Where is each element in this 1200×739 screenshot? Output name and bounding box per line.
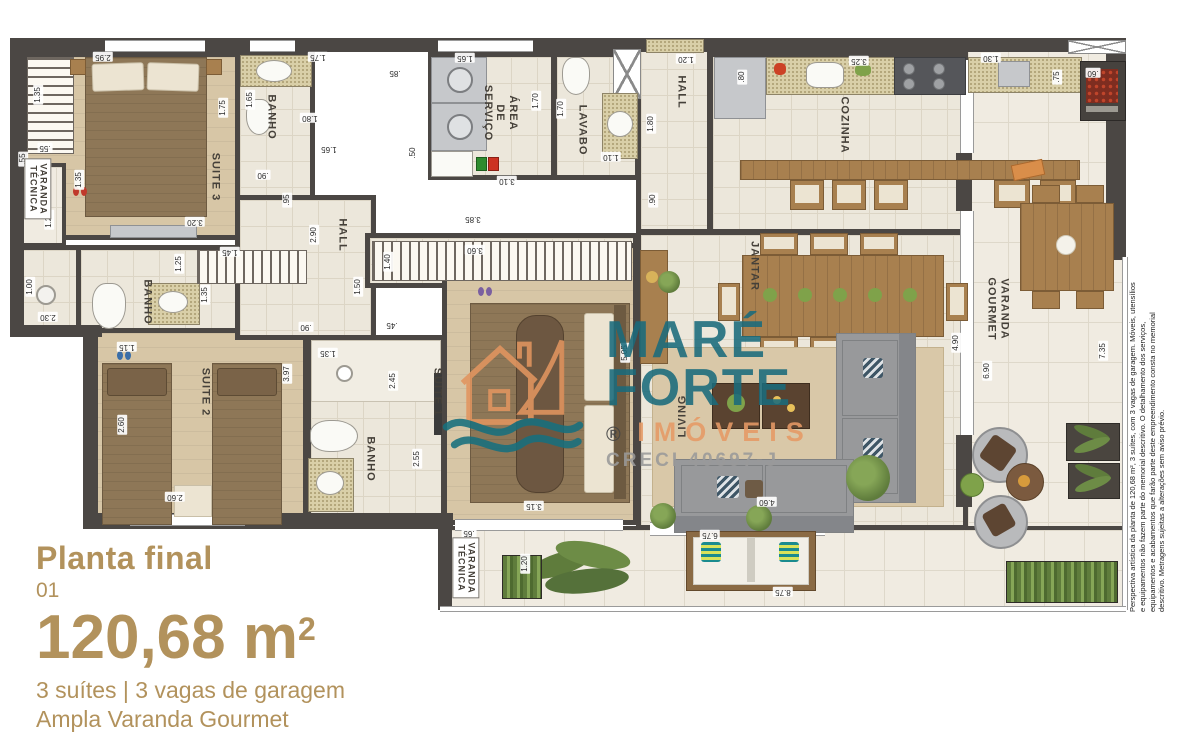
dimension-label: 1.50	[353, 277, 363, 297]
floor-plan-page: MARÉ FORTE ® IMÓVEIS CRECI 40697-J SUITE…	[0, 0, 1200, 739]
dimension-label: .85	[387, 68, 402, 78]
dimension-label: .60	[1085, 68, 1100, 78]
dimension-label: .80	[737, 69, 747, 84]
slippers	[117, 351, 123, 360]
plan-area: 120,68 m2	[36, 607, 345, 669]
palm-planter	[1068, 463, 1120, 499]
room-label-rea-de-servi-o: ÁREA DE SERVIÇO	[481, 85, 519, 141]
dimension-label: 7.35	[1098, 341, 1108, 361]
sink-banho-2	[158, 291, 188, 313]
dimension-label: 1.30	[981, 53, 1001, 63]
room-label-hall: HALL	[675, 75, 688, 108]
dimension-label: 6.90	[982, 361, 992, 381]
dimension-label: .75	[1052, 69, 1062, 84]
dimension-label: 1.80	[646, 114, 656, 134]
dimension-label: 1.20	[676, 54, 696, 64]
room-label-living: LIVING	[677, 395, 690, 438]
room-label-hall: HALL	[336, 218, 349, 251]
long-planter	[1006, 561, 1118, 603]
dimension-label: 2.90	[309, 225, 319, 245]
plant	[746, 505, 772, 531]
dresser-suite-3	[110, 225, 197, 238]
dimension-label: 6.75	[700, 530, 720, 540]
detergent	[488, 157, 499, 171]
dimension-label: 1.35	[33, 85, 43, 105]
table-flowers	[1056, 235, 1076, 255]
dimension-label: .55	[37, 143, 52, 153]
slippers	[478, 287, 484, 296]
nightstand	[206, 59, 222, 75]
disclaimer-text: Perspectiva artística da planta de 120,6…	[1128, 280, 1167, 612]
plant	[650, 503, 676, 529]
plan-features: 3 suítes | 3 vagas de garagem	[36, 677, 345, 704]
dimension-label: 3.85	[463, 214, 483, 224]
palm-planter	[1066, 423, 1120, 461]
dimension-label: 1.20	[520, 554, 530, 574]
wall-left	[10, 38, 24, 334]
dimension-label: 3.10	[497, 176, 517, 186]
room-label-jantar: JANTAR	[748, 241, 761, 291]
window-x-icon	[1068, 40, 1126, 54]
fire-table	[1006, 463, 1044, 501]
lounge-chair	[974, 495, 1028, 549]
dimension-label: 8.75	[773, 587, 793, 597]
cooktop	[894, 57, 966, 95]
dimension-label: 1.80	[300, 113, 320, 123]
dimension-label: 3.25	[849, 56, 869, 66]
dimension-label: 1.65	[319, 144, 339, 154]
railing-bottom	[440, 606, 1126, 612]
chair	[1076, 291, 1104, 309]
dimension-label: .90	[648, 192, 658, 207]
wall-varanda-left	[438, 526, 452, 610]
slippers	[486, 287, 492, 296]
dimension-label: 2.55	[412, 449, 422, 469]
chair	[1076, 185, 1104, 203]
bar-stool	[832, 180, 866, 210]
room-label-suite-1: SUITE 1	[431, 368, 444, 417]
pillow	[147, 62, 200, 92]
bar-stool	[874, 180, 908, 210]
dimension-label: 1.75	[308, 52, 328, 62]
wall-suite2-left	[83, 325, 97, 527]
dryer-door	[447, 114, 473, 140]
chair	[1032, 291, 1060, 309]
slippers	[125, 351, 131, 360]
dimension-label: .90	[298, 322, 313, 332]
detergent	[476, 157, 487, 171]
pillow	[107, 368, 167, 396]
pillow	[584, 405, 614, 493]
blanket-roll	[516, 315, 564, 493]
dimension-label: 3.15	[524, 501, 544, 511]
daybed	[686, 531, 816, 591]
room-label-banho: BANHO	[364, 436, 377, 481]
washer-door	[447, 67, 473, 93]
room-label-lavabo: LAVABO	[576, 105, 589, 156]
dimension-label: 3.97	[282, 364, 292, 384]
entry-threshold	[646, 39, 704, 53]
dimension-label: 1.35	[74, 170, 84, 190]
dimension-label: 2.60	[165, 492, 185, 502]
dimension-label: 1.65	[245, 90, 255, 110]
dimension-label: 4.90	[951, 333, 961, 353]
chair	[860, 233, 898, 255]
dimension-label: .50	[408, 145, 418, 160]
room-label-varanda-gourmet: VARANDA GOURMET	[985, 277, 1010, 340]
pillow	[217, 368, 277, 396]
coffee-table	[762, 383, 810, 429]
dimension-label: 3.60	[465, 245, 485, 255]
plan-title: Planta final	[36, 540, 345, 577]
chair	[946, 283, 968, 321]
dimension-label: .90	[255, 170, 270, 180]
dimension-label: 1.35	[318, 348, 338, 358]
room-label-suite-2: SUITE 2	[199, 368, 212, 417]
dimension-label: 2.60	[117, 415, 127, 435]
room-label-banho: BANHO	[265, 94, 278, 139]
dimension-label: .45	[384, 320, 399, 330]
window-suite-1	[455, 519, 623, 531]
dimension-label: 1.15	[117, 342, 137, 352]
tanque	[431, 151, 473, 177]
food-item	[774, 63, 786, 75]
dimension-label: 4.60	[757, 497, 777, 507]
chair	[810, 233, 848, 255]
chair	[760, 233, 798, 255]
moss-ball	[960, 473, 984, 497]
closet-suite-3	[27, 57, 74, 154]
toilet-banho-2	[92, 283, 126, 329]
toilet-lavabo	[562, 57, 590, 95]
glass-living-varanda	[960, 211, 974, 435]
room-label-varanda-t-cnica: VARANDA TÉCNICA	[25, 158, 52, 219]
sideboard	[640, 250, 668, 364]
plan-number: 01	[36, 579, 345, 603]
sink-banho-3	[256, 60, 292, 82]
dimension-label: .95	[282, 192, 292, 207]
dimension-label: 1.25	[174, 254, 184, 274]
pillow	[584, 313, 614, 401]
dimension-label: 1.65	[455, 53, 475, 63]
plan-subtitle: Ampla Varanda Gourmet	[36, 706, 345, 733]
plant	[658, 271, 680, 293]
dimension-label: 2.95	[93, 52, 113, 62]
closet-suite-2	[197, 250, 307, 284]
floor-plan: MARÉ FORTE ® IMÓVEIS CRECI 40697-J SUITE…	[10, 35, 1128, 615]
plan-info: Planta final 01 120,68 m2 3 suítes | 3 v…	[36, 540, 345, 733]
dimension-label: 3.20	[185, 217, 205, 227]
room-label-banho: BANHO	[141, 279, 154, 324]
dimension-label: 2.45	[388, 371, 398, 391]
window-banho-3	[250, 40, 295, 52]
bar-stool	[790, 180, 824, 210]
room-label-suite-3: SUITE 3	[209, 153, 222, 202]
dimension-label: 1.00	[25, 277, 35, 297]
dimension-label: 1.75	[218, 98, 228, 118]
sink-banho-1	[316, 471, 344, 495]
fridge	[714, 57, 766, 119]
chair	[718, 283, 740, 321]
dimension-label: 1.70	[531, 91, 541, 111]
window-area-servico	[438, 40, 533, 52]
shaft-x-icon	[613, 49, 641, 99]
coffee-table	[712, 383, 760, 429]
nightstand	[70, 59, 86, 75]
room-label-cozinha: COZINHA	[838, 96, 851, 153]
dimension-label: 1.35	[200, 285, 210, 305]
dimension-label: 1.40	[383, 252, 393, 272]
dimension-label: 1.45	[220, 247, 240, 257]
room-label-varanda-t-cnica: VARANDA TÉCNICA	[453, 537, 480, 598]
dimension-label: 1.70	[556, 99, 566, 119]
dining-table	[742, 255, 944, 337]
decor-bowl	[646, 271, 658, 283]
disclaimer: Perspectiva artística da planta de 120,6…	[1128, 612, 1200, 651]
vegetables	[855, 64, 871, 76]
pillow	[92, 62, 145, 92]
dimension-label: 5.05	[620, 343, 630, 363]
shower-drain	[36, 285, 56, 305]
toilet-banho-1	[310, 420, 358, 452]
plant	[846, 455, 890, 501]
closet-suite-1-hangers	[372, 241, 632, 281]
dimension-label: 2.30	[38, 312, 58, 322]
kitchen-sink	[806, 62, 844, 88]
chair	[1032, 185, 1060, 203]
gourmet-sink	[998, 61, 1030, 87]
headboard-suite-1	[614, 305, 626, 499]
window-suite-3	[105, 40, 205, 52]
shower-drain	[336, 365, 353, 382]
dimension-label: 1.10	[601, 152, 621, 162]
sink-lavabo	[607, 111, 633, 137]
